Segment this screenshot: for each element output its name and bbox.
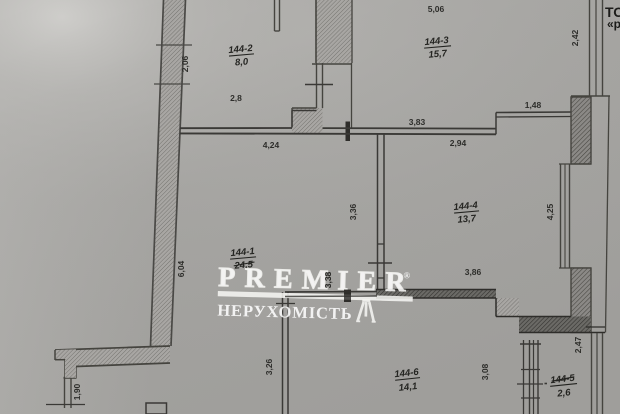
- svg-text:4,24: 4,24: [263, 140, 280, 150]
- svg-text:1,48: 1,48: [525, 100, 542, 110]
- svg-text:НЕРУХОМІСТЬ: НЕРУХОМІСТЬ: [217, 300, 353, 323]
- svg-text:5,06: 5,06: [428, 4, 445, 14]
- svg-text:4,25: 4,25: [545, 203, 555, 220]
- svg-text:14,1: 14,1: [398, 381, 418, 394]
- svg-text:15,7: 15,7: [428, 48, 448, 61]
- svg-text:3,38: 3,38: [323, 271, 333, 288]
- svg-text:8,0: 8,0: [235, 56, 250, 68]
- svg-text:2,06: 2,06: [180, 55, 190, 72]
- svg-text:2,94: 2,94: [450, 138, 467, 148]
- svg-text:1,90: 1,90: [72, 383, 82, 400]
- svg-text:3,26: 3,26: [264, 358, 274, 375]
- svg-text:2,8: 2,8: [230, 93, 242, 103]
- svg-text:13,7: 13,7: [457, 213, 477, 226]
- svg-text:2,6: 2,6: [556, 387, 572, 399]
- svg-text:«р: «р: [607, 17, 620, 31]
- svg-text:3,86: 3,86: [465, 267, 482, 277]
- svg-text:6,04: 6,04: [176, 260, 186, 277]
- svg-text:3,83: 3,83: [409, 117, 426, 127]
- svg-text:®: ®: [403, 270, 410, 280]
- svg-text:2,42: 2,42: [570, 29, 580, 46]
- svg-text:2,47: 2,47: [573, 336, 583, 353]
- svg-text:3,08: 3,08: [480, 363, 490, 380]
- svg-text:3,36: 3,36: [348, 203, 358, 220]
